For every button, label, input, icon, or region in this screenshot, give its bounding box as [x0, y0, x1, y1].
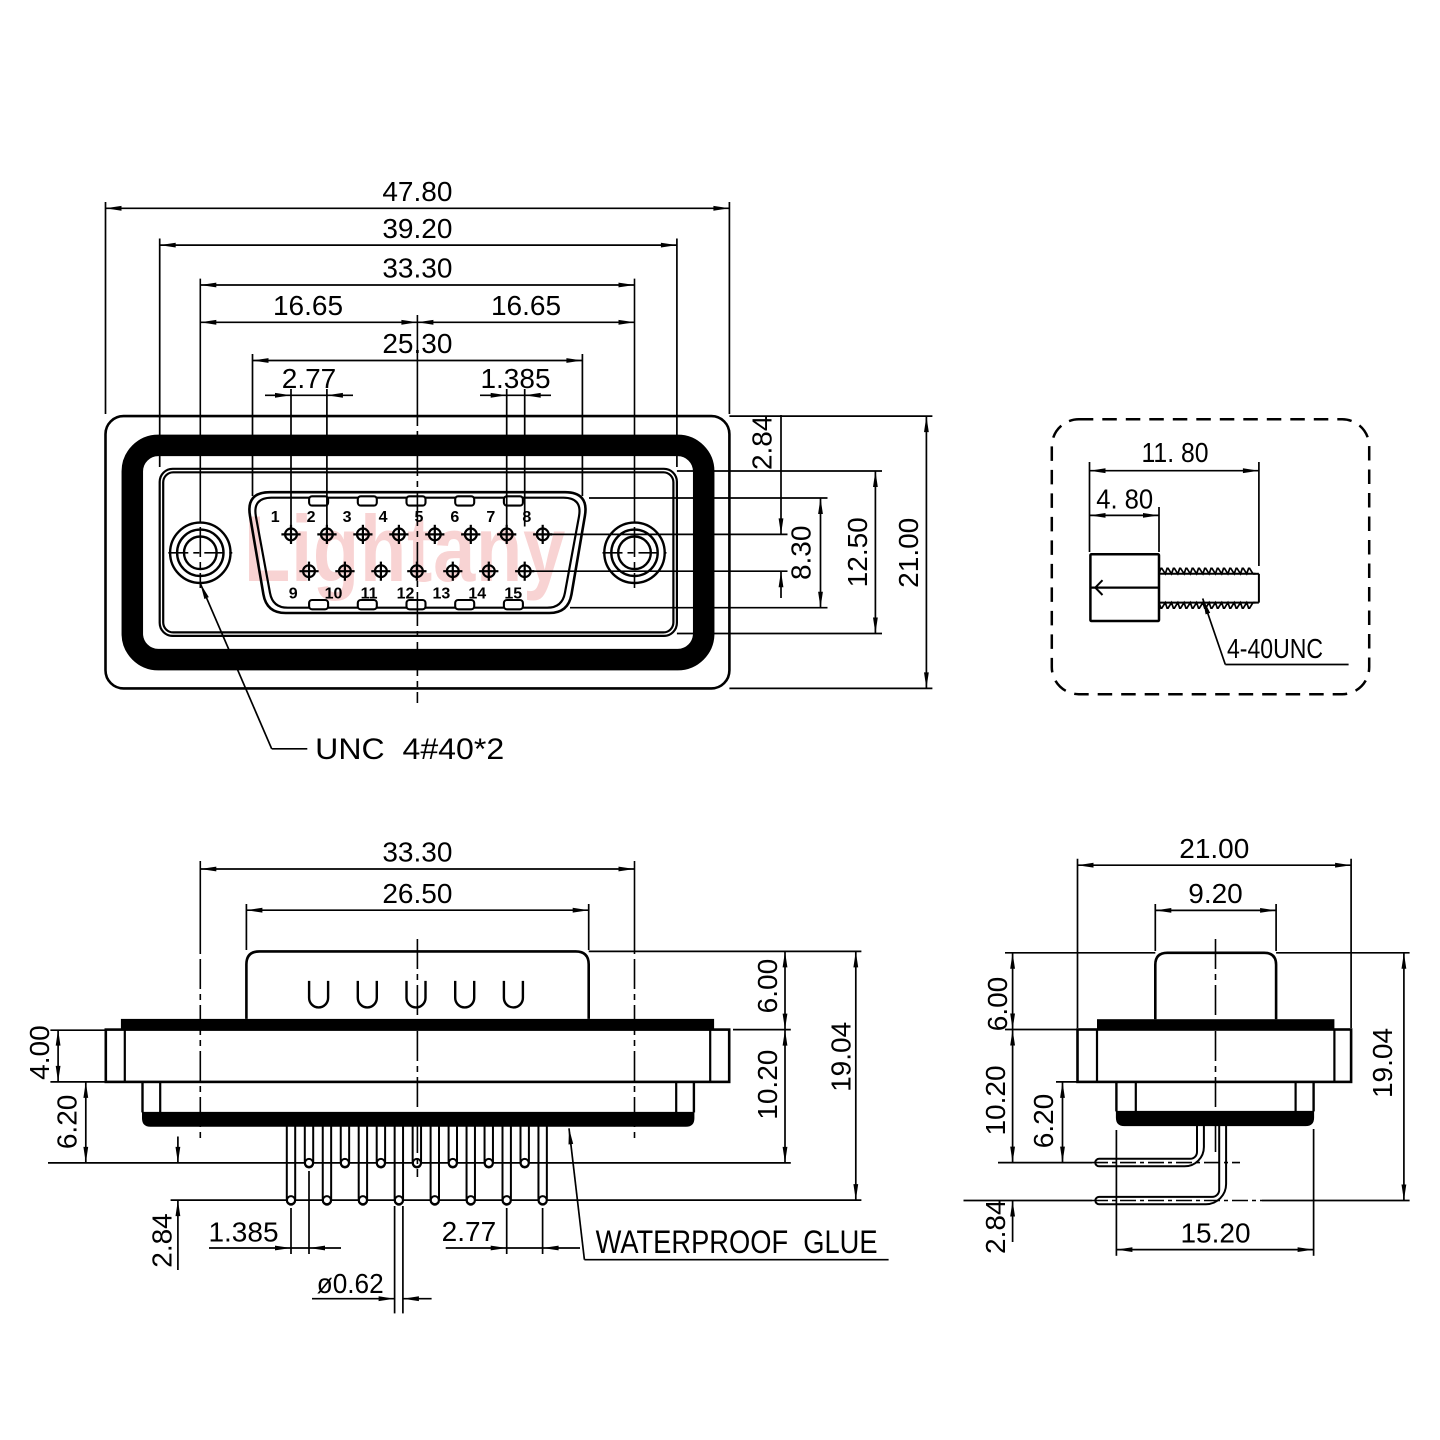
svg-text:6: 6: [450, 509, 459, 526]
svg-text:15.20: 15.20: [1180, 1217, 1250, 1248]
svg-text:47.80: 47.80: [382, 176, 452, 207]
svg-text:39.20: 39.20: [382, 213, 452, 244]
svg-text:21.00: 21.00: [1179, 833, 1249, 864]
svg-text:8: 8: [522, 509, 531, 526]
svg-text:10.20: 10.20: [980, 1065, 1011, 1135]
svg-text:11: 11: [361, 585, 378, 602]
svg-text:25.30: 25.30: [382, 328, 452, 359]
svg-text:16.65: 16.65: [273, 290, 343, 321]
svg-text:12: 12: [397, 585, 415, 602]
svg-text:6.20: 6.20: [1028, 1094, 1059, 1149]
svg-text:14: 14: [468, 585, 486, 602]
svg-text:8.30: 8.30: [786, 526, 817, 581]
svg-text:9: 9: [289, 585, 298, 602]
svg-text:12.50: 12.50: [842, 517, 873, 587]
svg-text:7: 7: [486, 509, 495, 526]
svg-text:19.04: 19.04: [826, 1022, 857, 1092]
svg-text:4-40UNC: 4-40UNC: [1227, 633, 1323, 664]
svg-text:2.84: 2.84: [747, 416, 778, 471]
svg-text:21.00: 21.00: [893, 518, 924, 588]
svg-text:3: 3: [343, 509, 352, 526]
svg-text:ø0.62: ø0.62: [317, 1268, 384, 1299]
svg-text:9.20: 9.20: [1188, 878, 1243, 909]
svg-text:1.385: 1.385: [208, 1216, 278, 1247]
svg-text:5: 5: [415, 509, 424, 526]
svg-text:10: 10: [325, 585, 343, 602]
svg-text:10.20: 10.20: [752, 1050, 783, 1120]
svg-text:1: 1: [271, 509, 280, 526]
svg-text:2.77: 2.77: [442, 1216, 497, 1247]
svg-text:UNC 4#40*2: UNC 4#40*2: [315, 733, 504, 766]
svg-text:4: 4: [379, 509, 388, 526]
svg-text:16.65: 16.65: [491, 290, 561, 321]
svg-text:15: 15: [504, 585, 522, 602]
svg-text:2.77: 2.77: [282, 363, 337, 394]
svg-text:6.20: 6.20: [52, 1095, 83, 1150]
svg-text:1.385: 1.385: [480, 363, 550, 394]
svg-text:19.04: 19.04: [1367, 1028, 1398, 1098]
svg-text:4. 80: 4. 80: [1096, 483, 1153, 514]
svg-text:13: 13: [433, 585, 451, 602]
svg-text:6.00: 6.00: [982, 977, 1013, 1032]
svg-text:26.50: 26.50: [382, 878, 452, 909]
svg-text:2.84: 2.84: [980, 1199, 1011, 1254]
svg-text:4.00: 4.00: [24, 1025, 55, 1080]
svg-text:6.00: 6.00: [752, 959, 783, 1014]
svg-text:2.84: 2.84: [146, 1213, 177, 1268]
svg-text:WATERPROOF GLUE: WATERPROOF GLUE: [596, 1224, 878, 1260]
svg-text:2: 2: [307, 509, 316, 526]
svg-text:33.30: 33.30: [382, 837, 452, 868]
svg-text:11. 80: 11. 80: [1142, 437, 1209, 468]
svg-text:33.30: 33.30: [382, 253, 452, 284]
